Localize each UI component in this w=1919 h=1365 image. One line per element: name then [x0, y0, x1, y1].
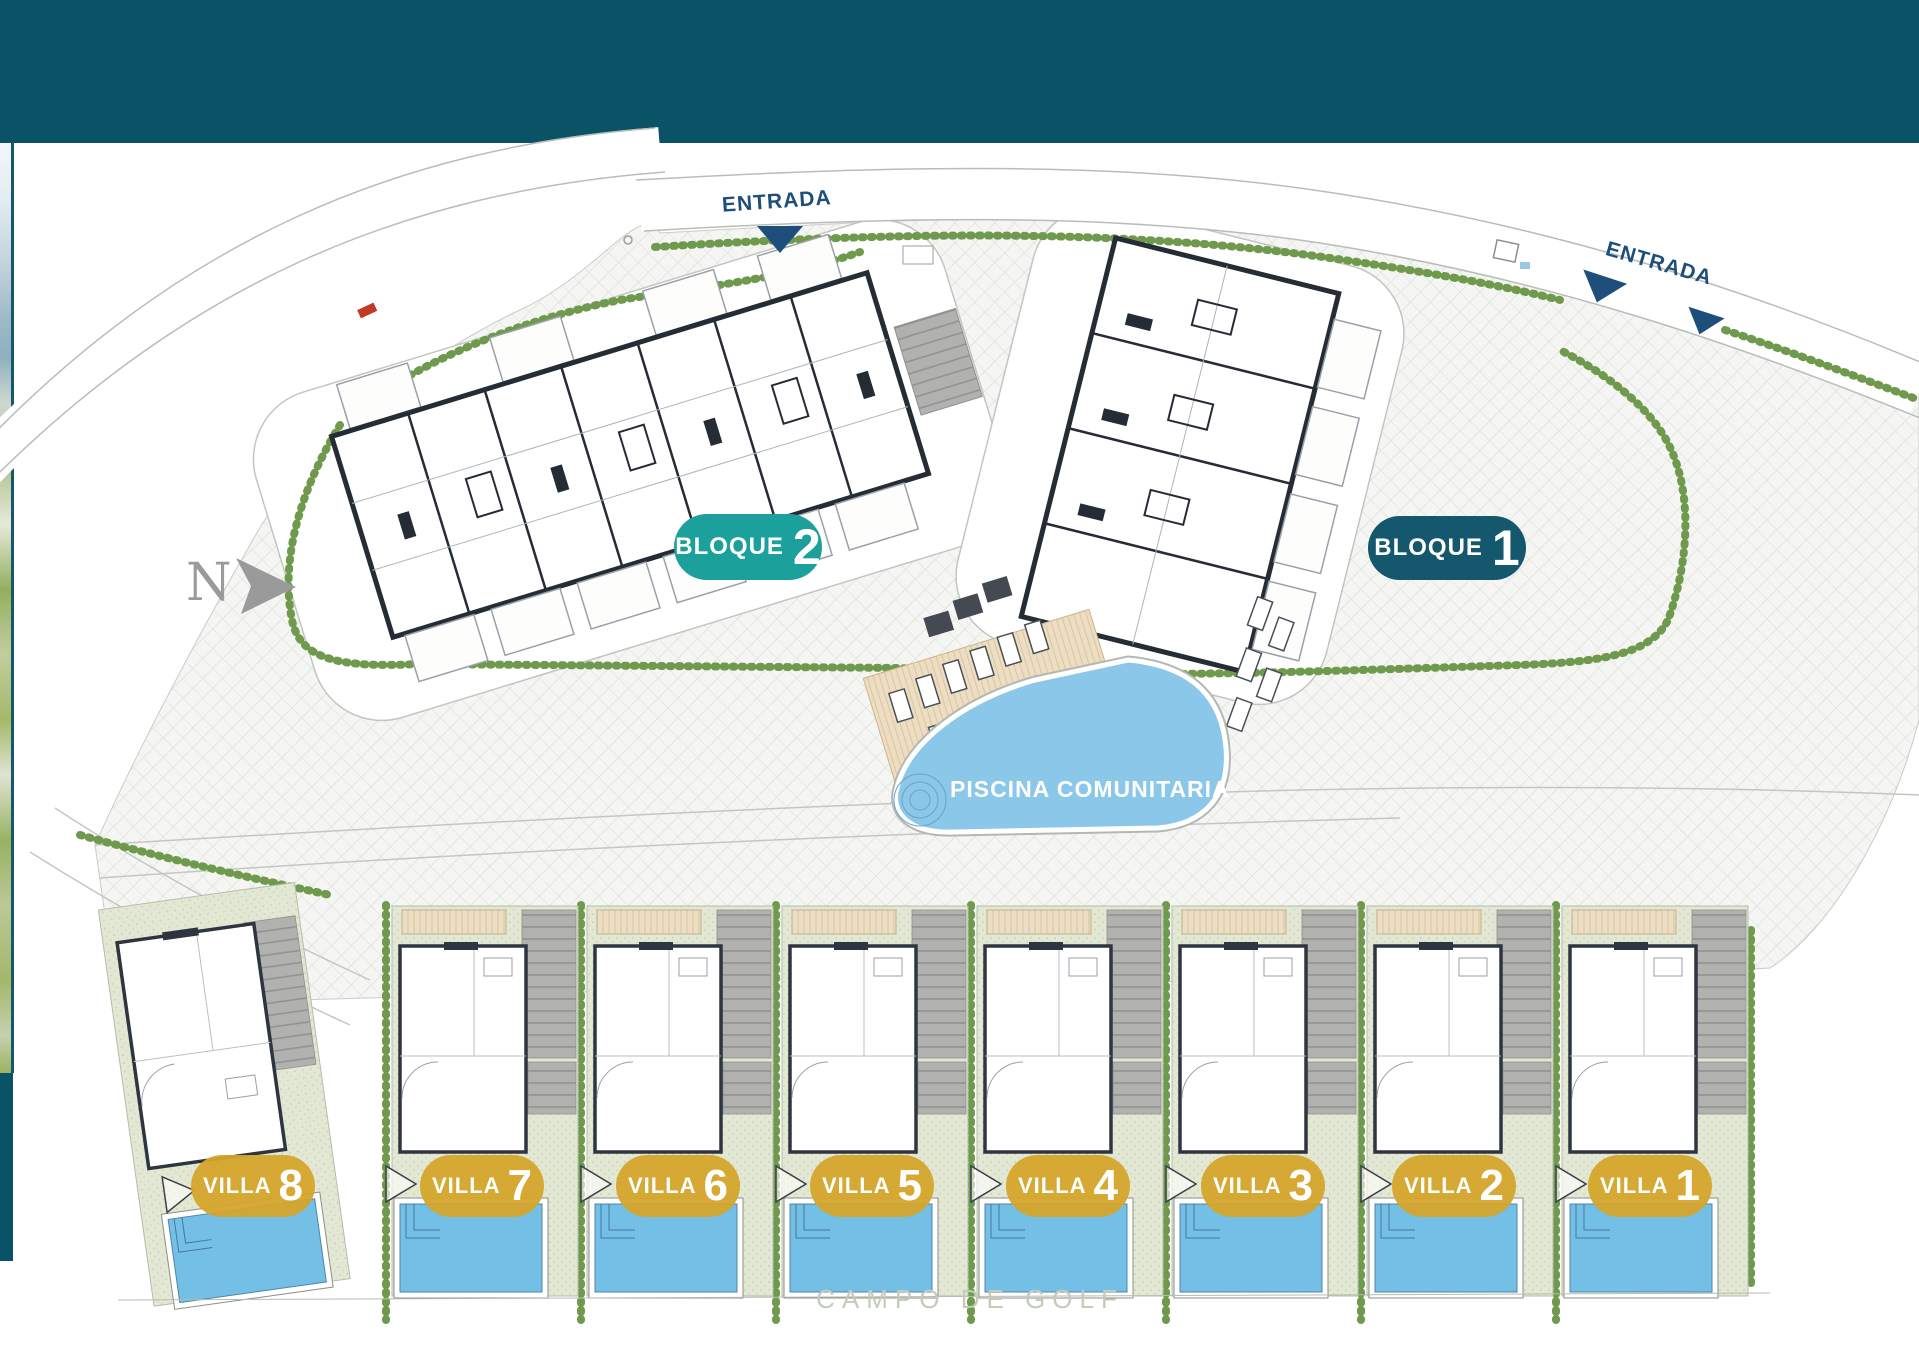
site-plan-page: ENTRADA ENTRADA BLOQUE 2 BLOQUE 1 PISCIN… — [0, 0, 1919, 1365]
villa-plot — [776, 906, 968, 1298]
villa-plot — [1556, 906, 1748, 1298]
villa-number: 5 — [898, 1164, 922, 1208]
villa-number: 6 — [704, 1164, 728, 1208]
hedge-gate — [903, 246, 933, 264]
villa-name: VILLA — [1600, 1173, 1669, 1199]
villa-badge-2[interactable]: VILLA 2 — [1392, 1155, 1516, 1217]
villa-badge-8[interactable]: VILLA 8 — [191, 1155, 315, 1217]
villa-plots-row — [386, 906, 1748, 1298]
villa-plot — [386, 906, 578, 1298]
villa-plot — [971, 906, 1163, 1298]
entrance-kiosk — [1493, 240, 1518, 262]
villa-name: VILLA — [203, 1173, 272, 1199]
villa-badge-3[interactable]: VILLA 3 — [1201, 1155, 1325, 1217]
villa-name: VILLA — [628, 1173, 697, 1199]
golf-course-label: CAMPO DE GOLF — [790, 1284, 1150, 1315]
villa-name: VILLA — [822, 1173, 891, 1199]
villa-badge-6[interactable]: VILLA 6 — [616, 1155, 740, 1217]
bloque2-badge[interactable]: BLOQUE 2 — [674, 514, 822, 580]
villa-number: 7 — [508, 1164, 532, 1208]
communal-pool-label: PISCINA COMUNITARIA — [950, 776, 1210, 803]
villa-badge-4[interactable]: VILLA 4 — [1006, 1155, 1130, 1217]
villa-name: VILLA — [432, 1173, 501, 1199]
villa-plot — [581, 906, 773, 1298]
bloque2-name: BLOQUE — [675, 533, 784, 561]
villa-number: 3 — [1289, 1164, 1313, 1208]
villa-number: 1 — [1676, 1164, 1700, 1208]
north-letter: N — [186, 557, 232, 609]
villa-name: VILLA — [1213, 1173, 1282, 1199]
villa-plot — [1166, 906, 1358, 1298]
bloque1-badge[interactable]: BLOQUE 1 — [1368, 516, 1526, 580]
villa-number: 2 — [1480, 1164, 1504, 1208]
villa-name: VILLA — [1404, 1173, 1473, 1199]
bloque1-number: 1 — [1492, 523, 1520, 573]
car — [357, 303, 377, 319]
entrada-arrow-top — [757, 226, 803, 253]
entrance-marker — [1520, 262, 1530, 269]
villa-badge-5[interactable]: VILLA 5 — [810, 1155, 934, 1217]
villa-number: 4 — [1094, 1164, 1118, 1208]
villa-name: VILLA — [1018, 1173, 1087, 1199]
north-arrow-icon — [234, 556, 304, 616]
villa-plot — [1361, 906, 1553, 1298]
villa-badge-7[interactable]: VILLA 7 — [420, 1155, 544, 1217]
villa-number: 8 — [279, 1164, 303, 1208]
villa-badge-1[interactable]: VILLA 1 — [1588, 1155, 1712, 1217]
bloque2-number: 2 — [793, 522, 821, 572]
bloque1-name: BLOQUE — [1374, 534, 1483, 562]
north-indicator: N — [186, 550, 304, 616]
